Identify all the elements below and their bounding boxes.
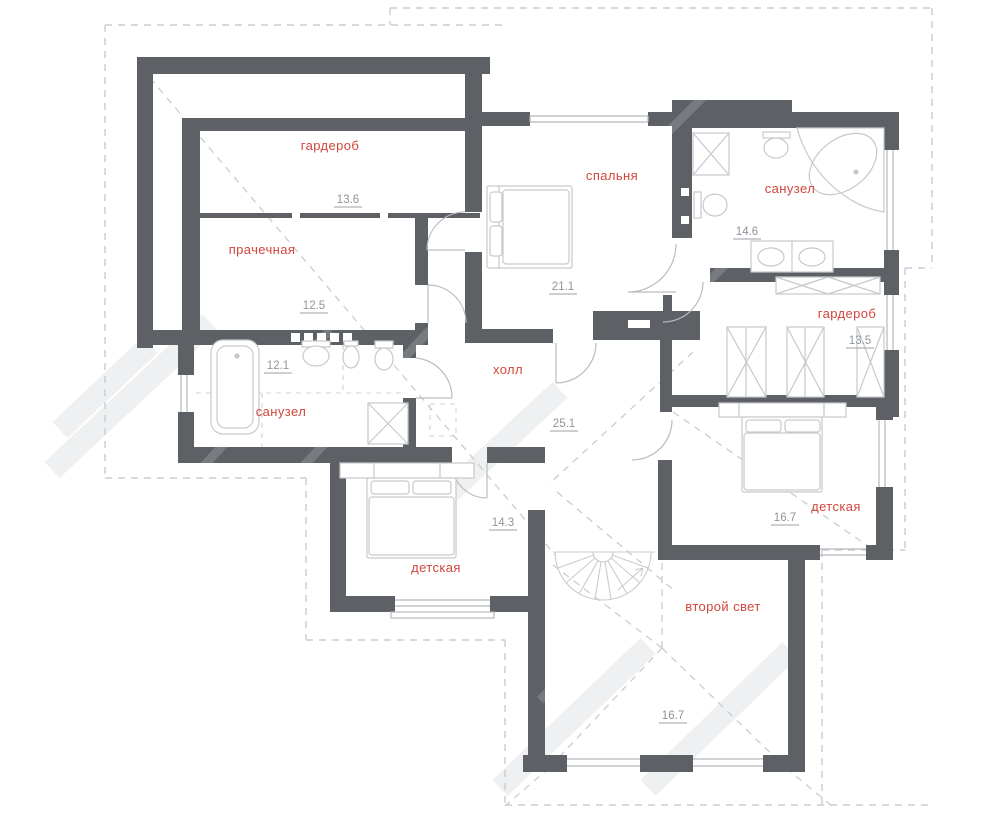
- room-label-wardrobe-right: гардероб: [818, 306, 877, 321]
- bed-nursery-left-symbol: [340, 463, 474, 558]
- area-second-light: 16.7: [662, 710, 684, 722]
- bathroom-right-window: [887, 150, 893, 250]
- area-bathroom-left: 12.1: [267, 360, 289, 372]
- door-bathroom-left: [416, 358, 452, 398]
- door-nursery-right: [632, 420, 672, 460]
- floor-plan-drawing: гардероб прачечная санузел спальня сануз…: [0, 0, 1000, 822]
- door-laundry: [428, 285, 466, 323]
- room-label-second-light: второй свет: [685, 599, 760, 614]
- room-label-hall: холл: [493, 362, 523, 377]
- nursery-left-window: [391, 600, 494, 618]
- bathroom-left-window: [181, 375, 187, 412]
- toilet-left-symbol: [375, 341, 393, 370]
- area-laundry: 12.5: [303, 300, 325, 312]
- sink-left-symbol: [302, 341, 330, 366]
- wardrobe-right-window: [887, 295, 893, 350]
- area-nursery-right: 16.7: [774, 512, 796, 524]
- bed-nursery-right-symbol: [719, 403, 846, 492]
- bedroom-window: [530, 116, 648, 122]
- room-label-bathroom-left: санузел: [256, 404, 306, 419]
- area-bedroom: 21.1: [552, 281, 574, 293]
- area-wardrobe-right: 13.5: [849, 335, 871, 347]
- bidet-symbol: [343, 341, 359, 368]
- toilet-right-symbol: [694, 192, 727, 218]
- wardrobe-cabinet-1: [727, 327, 766, 397]
- room-label-wardrobe-left: гардероб: [301, 138, 360, 153]
- area-wardrobe-left: 13.6: [337, 194, 359, 206]
- shower-right-symbol: [693, 133, 729, 175]
- corner-bath-symbol: [797, 121, 888, 212]
- nursery-right-window: [879, 420, 885, 487]
- room-label-bathroom-right: санузел: [765, 181, 815, 196]
- door-bedroom-bathroom-right: [628, 244, 676, 292]
- area-bathroom-right: 14.6: [736, 226, 758, 238]
- bed-bedroom-symbol: [487, 186, 572, 268]
- room-label-nursery-left: детская: [411, 560, 461, 575]
- room-label-bedroom: спальня: [586, 168, 638, 183]
- sink-right-symbol: [763, 132, 790, 158]
- bathtub-symbol: [211, 340, 259, 434]
- wardrobe-cabinet-horizontal: [776, 277, 880, 294]
- room-label-laundry: прачечная: [229, 242, 296, 257]
- double-sink-symbol: [751, 241, 833, 272]
- shower-left-symbol: [368, 403, 408, 444]
- wardrobe-cabinet-2: [787, 327, 824, 397]
- area-nursery-left: 14.3: [492, 517, 514, 529]
- door-bedroom-hall: [556, 343, 596, 383]
- area-hall: 25.1: [553, 418, 575, 430]
- room-label-nursery-right: детская: [811, 499, 861, 514]
- floor-plan-page: гардероб прачечная санузел спальня сануз…: [0, 0, 1000, 822]
